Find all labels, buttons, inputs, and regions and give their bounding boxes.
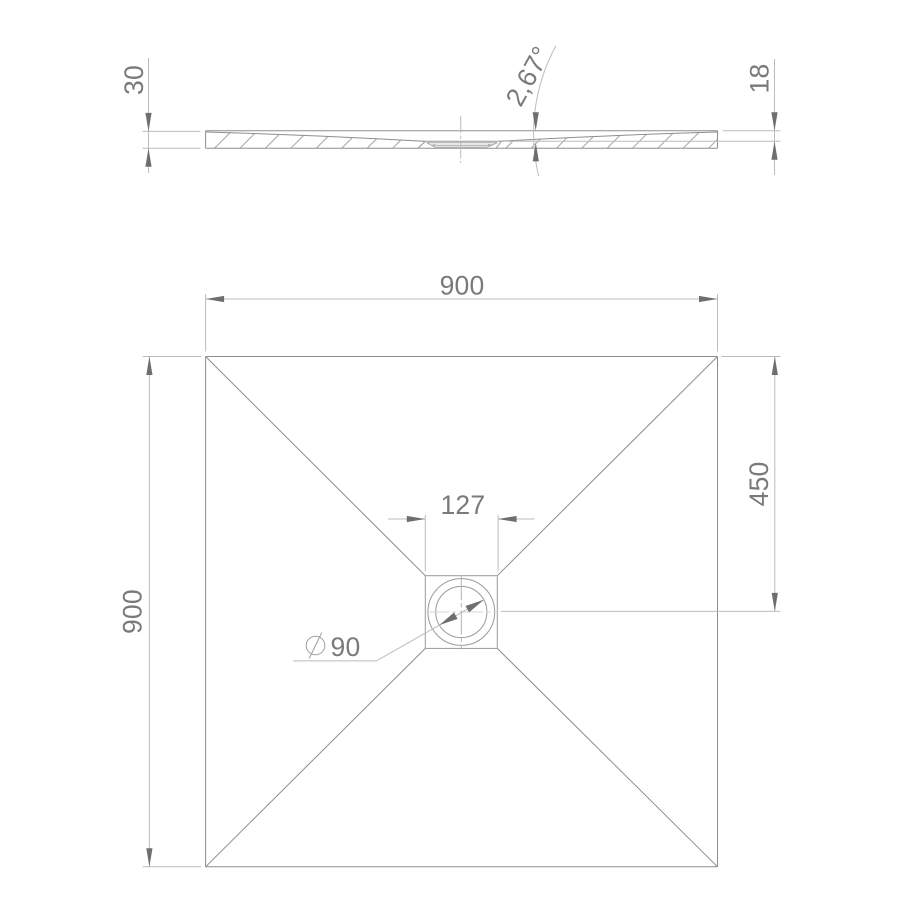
svg-text:900: 900 (440, 271, 485, 301)
svg-text:90: 90 (331, 632, 361, 662)
svg-text:30: 30 (119, 65, 149, 95)
svg-text:127: 127 (440, 490, 485, 520)
svg-text:18: 18 (745, 64, 775, 94)
svg-text:900: 900 (117, 589, 147, 634)
svg-text:450: 450 (744, 461, 774, 506)
